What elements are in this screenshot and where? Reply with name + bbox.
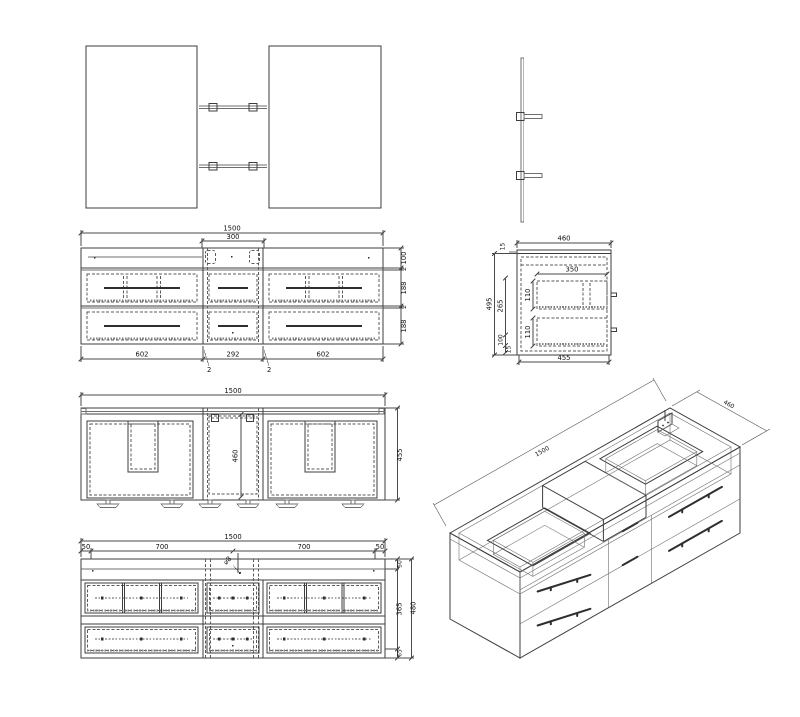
iso-drawer-handles xyxy=(538,487,722,626)
dim-front-row-bottom: 188 xyxy=(400,320,408,333)
iso-cavity-floor xyxy=(459,440,731,594)
dim-rear-span-right: 700 xyxy=(298,543,311,551)
plan-compartment-right xyxy=(268,421,377,498)
dim-rear-h-total: 480 xyxy=(410,602,418,615)
dim-side-counter: 15 xyxy=(500,243,507,251)
dim-front-col-left: 602 xyxy=(136,351,149,359)
plan-basin-notch-left xyxy=(128,421,158,472)
dim-front-gap-top: 2 xyxy=(401,267,408,271)
dim-rear-margin-left: 50 xyxy=(82,543,91,551)
rear-carcass xyxy=(81,559,385,658)
mirror-panel-right xyxy=(269,46,381,208)
dim-front-col-center: 292 xyxy=(227,351,240,359)
dim-rear-h-mid: 365 xyxy=(396,603,404,616)
dim-front-col-right: 602 xyxy=(317,351,330,359)
mirror-bracket-hidden-left xyxy=(206,251,216,264)
plan-feet xyxy=(97,500,364,508)
cabinet-rear-view: ⌀8 xyxy=(79,533,418,661)
dim-side-drawer-upper: 110 xyxy=(524,289,532,302)
iso-basin-right xyxy=(600,426,703,495)
cabinet-side-section-view: 460 15 350 495 265 100 15 110 110 455 xyxy=(486,235,617,366)
cad-sheet: 1500 300 602 292 602 2 2 100 2 188 2 xyxy=(0,0,800,717)
plan-compartment-left xyxy=(87,421,193,498)
cabinet-plan-section-view: 460 1500 xyxy=(79,387,404,508)
iso-basin-left xyxy=(487,508,590,577)
drawer-face-center-mid xyxy=(209,274,257,302)
rear-view-dimensions: 1500 50 700 700 50 50 365 65 480 xyxy=(79,533,418,661)
drawer-face-left-mid xyxy=(87,274,197,302)
dim-rear-h-bottom: 65 xyxy=(397,649,404,657)
dim-front-center-top: 300 xyxy=(227,233,240,241)
dim-plan-depth: 455 xyxy=(396,449,404,462)
section-marker-left: 2 xyxy=(207,366,211,374)
dim-side-seg-bottom: 15 xyxy=(506,346,513,354)
drawer-face-center-bottom xyxy=(209,312,257,340)
drawer-face-right-bottom xyxy=(269,312,379,340)
dim-side-width-top: 460 xyxy=(558,235,571,243)
rear-drawer-box-center-top xyxy=(207,583,259,613)
dim-side-seg-low: 100 xyxy=(498,334,505,346)
rear-drawer-box-center-bottom xyxy=(207,627,259,653)
dim-front-gap-mid: 2 xyxy=(401,305,408,309)
dim-rear-h-top: 50 xyxy=(397,560,404,568)
dim-plan-width: 1500 xyxy=(224,387,241,395)
mirror-connector-bottom xyxy=(199,163,267,171)
side-handle-lower xyxy=(611,328,617,332)
iso-front-face xyxy=(520,447,740,658)
dim-front-total-width: 1500 xyxy=(223,225,240,233)
mirror-bracket-hidden-right xyxy=(250,251,260,264)
dim-rear-width: 1500 xyxy=(224,533,241,541)
front-carcass xyxy=(81,248,383,344)
side-handle-upper xyxy=(611,293,617,297)
mirror-side-view xyxy=(517,58,543,222)
dim-side-width-bottom: 455 xyxy=(558,354,571,362)
dim-iso-depth: 460 xyxy=(722,399,736,411)
dim-side-inner-width: 350 xyxy=(566,266,579,274)
dim-front-row-mid: 188 xyxy=(400,282,408,295)
rear-drawer-box-right-top xyxy=(267,583,381,613)
mirror-front-view xyxy=(86,46,381,208)
dim-side-height-overall: 495 xyxy=(486,298,494,311)
side-drawer-lower xyxy=(537,318,607,346)
rear-drawer-box-left-bottom xyxy=(85,627,198,653)
rear-hole-callout: ⌀8 xyxy=(222,553,241,574)
drawer-face-left-bottom xyxy=(87,312,197,340)
rear-drawer-box-right-bottom xyxy=(267,627,381,653)
mirror-connector-top xyxy=(199,104,267,112)
dim-side-seg-mid: 265 xyxy=(497,300,505,313)
dim-rear-hole: ⌀8 xyxy=(222,555,234,567)
plan-center-section: 460 xyxy=(209,412,257,499)
iso-left-face xyxy=(450,533,520,658)
cabinet-front-view: 1500 300 602 292 602 2 2 100 2 188 2 xyxy=(79,225,408,375)
front-view-dimensions: 1500 300 602 292 602 2 2 100 2 188 2 xyxy=(79,225,408,375)
mirror-side-bracket-bottom xyxy=(517,172,543,180)
plan-basin-notch-right xyxy=(305,421,335,472)
dim-front-row-top: 100 xyxy=(400,252,408,265)
dim-rear-margin-right: 50 xyxy=(376,543,385,551)
dim-side-drawer-lower: 110 xyxy=(524,326,532,339)
cabinet-isometric-view: 1500 460 xyxy=(433,378,770,658)
mirror-edge xyxy=(521,58,524,222)
rear-drawer-box-left-top xyxy=(85,583,198,613)
side-drawer-upper xyxy=(537,281,607,309)
mirror-panel-left xyxy=(86,46,197,208)
mirror-side-bracket-top xyxy=(517,113,543,121)
drawer-face-right-mid xyxy=(269,274,379,302)
vanity-technical-drawing: 1500 300 602 292 602 2 2 100 2 188 2 xyxy=(0,0,800,717)
plan-view-dimensions: 1500 455 xyxy=(79,387,404,503)
dim-plan-center-depth: 460 xyxy=(232,450,240,463)
dim-rear-span-left: 700 xyxy=(156,543,169,551)
side-view-dimensions: 460 15 350 495 265 100 15 110 110 455 xyxy=(486,235,614,366)
section-marker-right: 2 xyxy=(267,366,271,374)
